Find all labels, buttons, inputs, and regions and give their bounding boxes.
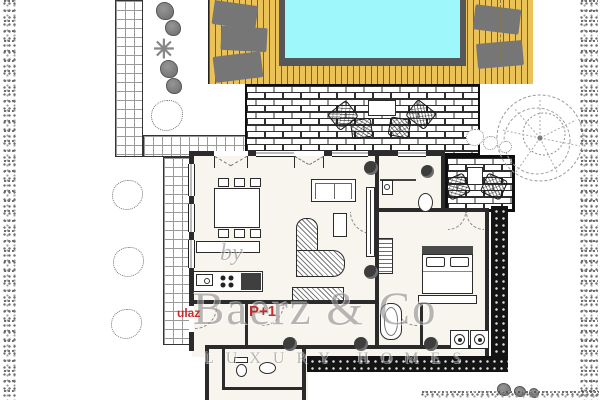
watermark-tagline: LUXURY HOMES (204, 350, 473, 368)
small-shrub (466, 129, 484, 146)
washbasin (421, 165, 434, 178)
window (188, 240, 195, 268)
spiky-plant-icon: ✳ (153, 36, 175, 62)
bush (111, 309, 142, 339)
sectional-sofa (296, 250, 345, 277)
perimeter-hedge-right (579, 0, 598, 400)
shrub (156, 2, 174, 20)
bush (151, 100, 183, 131)
bath-fixture (382, 180, 393, 195)
window (398, 150, 426, 157)
wardrobe (378, 238, 393, 274)
door-swing-icon (214, 156, 248, 168)
plan-note-label: P+1 (249, 303, 276, 320)
sofa (311, 179, 356, 202)
wall-segment (222, 387, 305, 390)
side-table (333, 213, 347, 237)
floor-plan-canvas: ✳ (0, 0, 600, 400)
side-patio-table (467, 167, 483, 185)
pillow (426, 257, 445, 267)
column (424, 337, 438, 351)
window (256, 150, 296, 157)
garden-tree (494, 92, 586, 184)
swimming-pool-frame (279, 0, 466, 66)
dining-chair (250, 178, 261, 187)
dryer (470, 330, 489, 349)
patio-chair-symbol (388, 116, 412, 138)
window (332, 150, 368, 157)
perimeter-hedge-left (2, 0, 16, 400)
wall-segment (441, 155, 445, 212)
window (188, 164, 195, 196)
dining-chair (218, 229, 229, 238)
dining-chair (234, 229, 245, 238)
shrub (166, 78, 182, 94)
bush (112, 180, 143, 210)
swimming-pool-water (285, 0, 460, 58)
entrance-label: ulaz (177, 306, 200, 320)
tv-cabinet (366, 187, 375, 257)
watermark-by: by (220, 240, 243, 267)
patio-chair-symbol (350, 118, 373, 140)
dining-chair (218, 178, 229, 187)
dining-chair (250, 229, 261, 238)
patio-dining-table (368, 100, 396, 116)
hedge-border-right (491, 206, 508, 372)
garden-path-vertical (115, 0, 143, 157)
deck-joint-line (500, 0, 501, 62)
column (354, 337, 368, 351)
column (283, 337, 297, 351)
bed-headboard (422, 246, 473, 254)
pillow (450, 257, 469, 267)
window (188, 204, 195, 232)
watermark-brand: Baerz & Co (193, 282, 438, 336)
washing-machine (450, 330, 469, 349)
door-swing-icon (294, 156, 324, 168)
dining-chair (234, 178, 245, 187)
wall-segment (375, 156, 379, 302)
bush (113, 247, 144, 277)
toilet (418, 193, 433, 212)
sun-lounger (220, 26, 267, 52)
dining-table (214, 188, 260, 228)
perimeter-hedge-bottom (420, 391, 599, 400)
shrub (160, 60, 178, 78)
column (364, 265, 378, 279)
column (364, 161, 378, 175)
